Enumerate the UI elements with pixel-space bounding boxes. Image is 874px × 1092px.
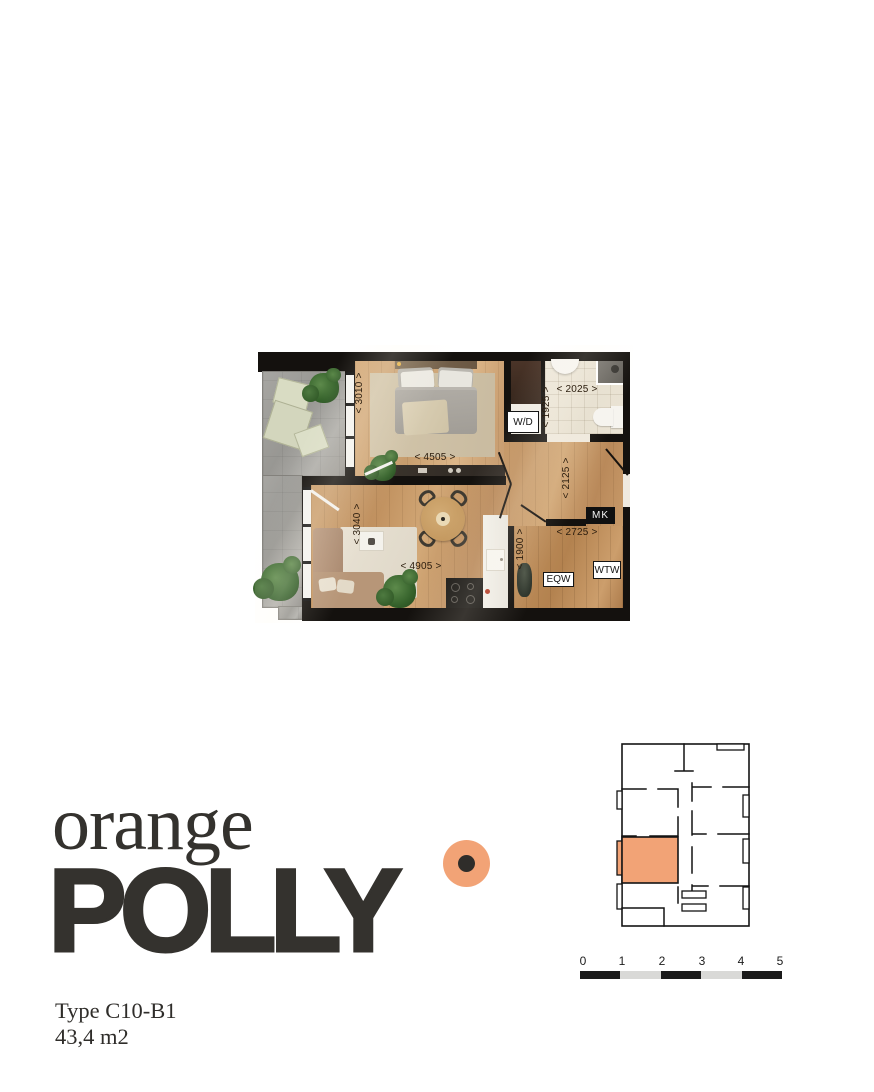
minimap-notch-left1 (617, 791, 622, 809)
dim-bathroom-width: < 1925 > (540, 375, 554, 439)
balcony-plant (261, 563, 299, 601)
terrace-plant (309, 373, 339, 403)
floorplan: < 3010 > < 4505 > < 2025 > < 1925 > < 21… (255, 345, 633, 623)
scale-tick-3: 3 (699, 954, 706, 968)
dim-entry-length: < 2725 > (545, 526, 609, 540)
scale-bar: 0 1 2 3 4 5 (580, 954, 786, 984)
minimap-notch-right1 (743, 795, 749, 817)
minimap-stair-bar2 (682, 904, 706, 911)
dim-living-width: < 3040 > (351, 492, 365, 556)
bed (395, 361, 477, 434)
console-item-2 (448, 468, 453, 473)
minimap-notch-left2 (617, 884, 622, 909)
scale-bar-segments (580, 971, 782, 979)
minimap-notch-right3 (743, 887, 749, 909)
living-plant (383, 575, 416, 608)
burner-1 (451, 583, 460, 592)
dining-table (421, 497, 465, 541)
shower-head (611, 365, 619, 373)
scale-tick-4: 4 (738, 954, 745, 968)
minimap-highlighted-unit (622, 837, 678, 883)
scale-segment (620, 971, 660, 979)
cooktop (446, 578, 483, 608)
dim-living-length: < 4905 > (389, 560, 453, 574)
building-minimap (616, 737, 756, 935)
scale-tick-1: 1 (619, 954, 626, 968)
scale-tick-0: 0 (580, 954, 587, 968)
wall-hall-entry (546, 519, 586, 526)
scale-segment (742, 971, 782, 979)
console-item-3 (456, 468, 461, 473)
entry-door-gap (623, 474, 630, 507)
kettle (485, 589, 490, 594)
wtw-box: WTW (593, 561, 621, 579)
burner-4 (466, 595, 475, 604)
unit-area-label: 43,4 m2 (55, 1024, 177, 1050)
scale-segment (580, 971, 620, 979)
dim-bedroom-length: < 4505 > (403, 451, 467, 465)
tv-console (390, 465, 505, 476)
sofa-pillow-1 (318, 577, 337, 592)
scale-segment (701, 971, 741, 979)
brand-dot-icon (443, 840, 490, 887)
washer-dryer-box: W/D (507, 411, 539, 433)
bed-throw (402, 399, 449, 435)
scale-tick-2: 2 (659, 954, 666, 968)
scale-tick-5: 5 (777, 954, 784, 968)
minimap-notch-right2 (743, 839, 749, 863)
sofa-pillow-2 (336, 579, 354, 594)
burner-2 (467, 583, 474, 590)
wardrobe (511, 361, 541, 404)
unit-type-label: Type C10-B1 (55, 998, 177, 1024)
minimap-notch-topright (717, 744, 744, 750)
floorplan-sheet: { "branding": { "word_serif": "orange", … (0, 0, 874, 1092)
dim-bathroom-length: < 2025 > (545, 383, 609, 397)
table-center-dot (441, 517, 445, 521)
unit-info: Type C10-B1 43,4 m2 (55, 998, 177, 1050)
meter-closet-box: MK (586, 507, 615, 524)
dim-hall-width: < 2125 > (560, 446, 574, 510)
eqw-box: EQW (543, 572, 574, 587)
brand-word-bold: POLLY (48, 852, 396, 970)
brand-dot-center (458, 855, 475, 872)
burner-3 (451, 596, 458, 603)
dim-bedroom-width: < 3010 > (353, 361, 367, 425)
console-item-1 (418, 468, 427, 473)
coffee-table-item (368, 538, 375, 545)
toilet-bowl (593, 408, 613, 426)
bed-lamp (397, 362, 401, 366)
scale-segment (661, 971, 701, 979)
dim-entry-width: < 1900 > (514, 517, 528, 581)
living-window (303, 487, 311, 601)
minimap-stair-bar1 (682, 891, 706, 898)
balcony-floor-step (279, 607, 302, 619)
kitchen-counter (483, 515, 508, 608)
shower (596, 361, 623, 385)
cabinet-handle (500, 558, 503, 561)
